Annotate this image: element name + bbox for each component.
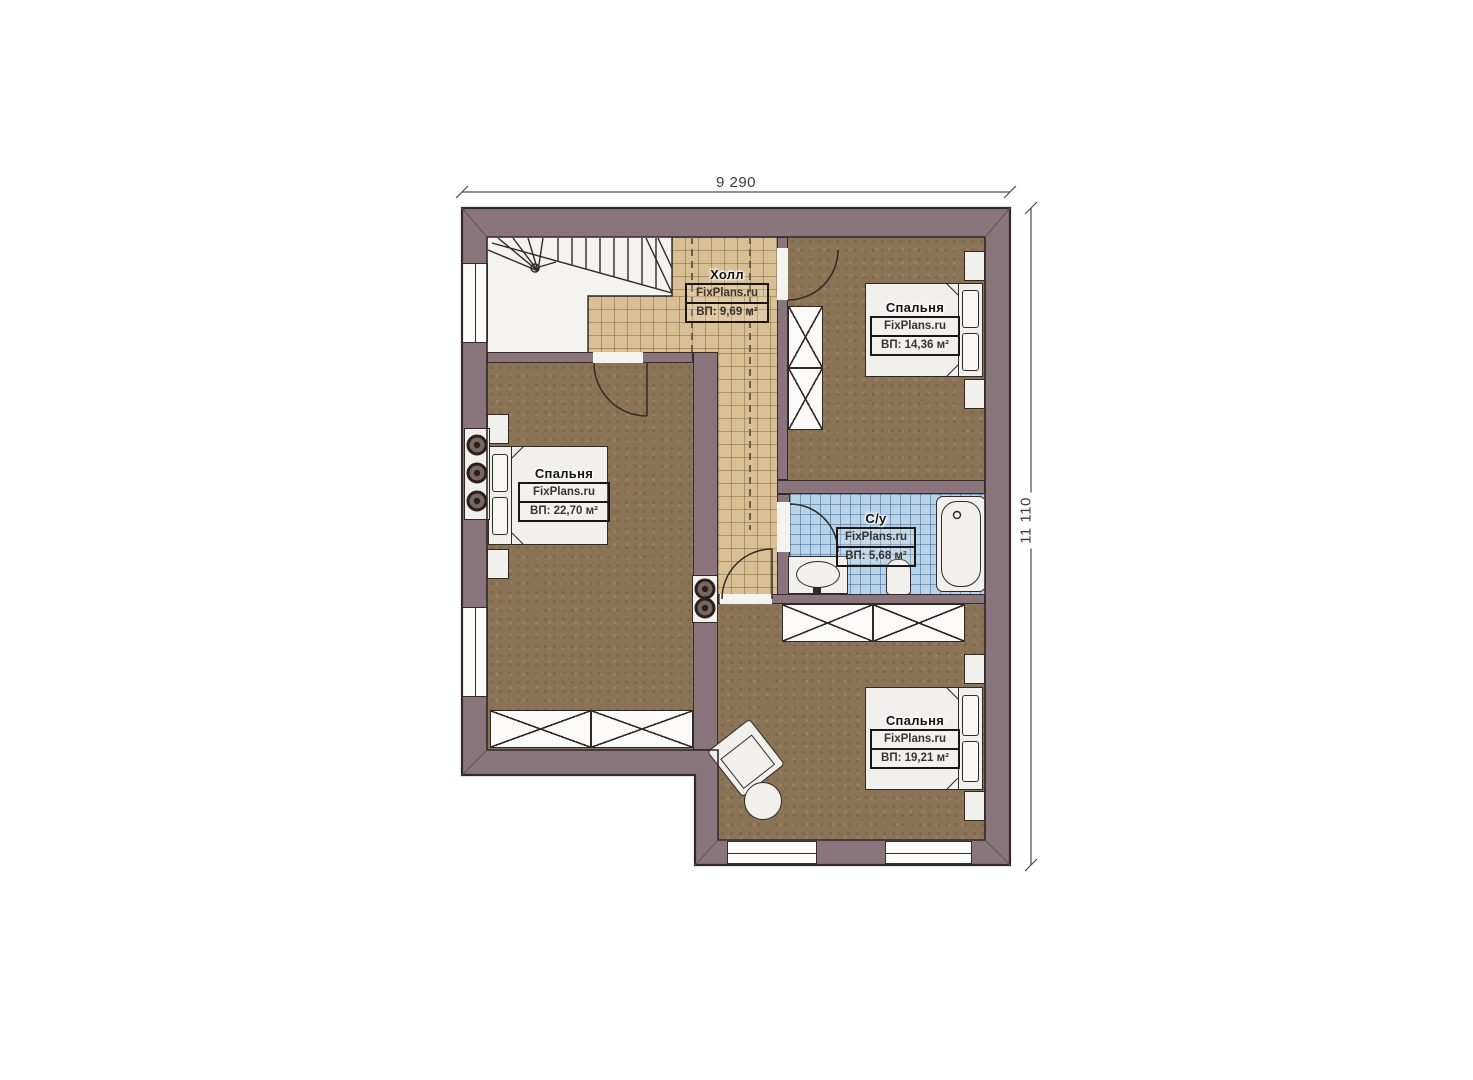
room-brand-watermark: FixPlans.ru	[836, 527, 916, 548]
room-label-bedroom-left: Спальня FixPlans.ru ВП: 22,70 м²	[518, 466, 610, 522]
room-area: ВП: 14,36 м²	[870, 335, 960, 356]
room-label-bedroom-top-right: Спальня FixPlans.ru ВП: 14,36 м²	[870, 300, 960, 356]
wall-step-left	[695, 775, 718, 840]
nightstand	[964, 791, 985, 821]
room-name: Холл	[685, 267, 769, 282]
chimney-flue-panel-left	[464, 428, 490, 520]
dimension-right-label: 11 110	[1018, 493, 1035, 549]
room-area: ВП: 9,69 м²	[685, 302, 769, 323]
window-staircase	[461, 263, 488, 343]
nightstand	[964, 379, 985, 409]
chimney-flue-panel-corridor	[692, 575, 718, 623]
room-brand-watermark: FixPlans.ru	[518, 482, 610, 503]
bathtub	[936, 496, 986, 592]
staircase-floor-lower	[487, 296, 588, 353]
room-brand-watermark: FixPlans.ru	[870, 316, 960, 337]
room-area: ВП: 22,70 м²	[518, 501, 610, 522]
nightstand	[487, 414, 509, 444]
room-name: Спальня	[870, 300, 960, 315]
pillow	[962, 695, 979, 736]
room-name: Спальня	[870, 713, 960, 728]
bathtub-inner	[941, 501, 981, 587]
door-opening-bedroom-bottom	[720, 594, 772, 604]
wardrobe-bedroom-left-cell	[490, 710, 591, 748]
room-name: Спальня	[518, 466, 610, 481]
pillow	[962, 741, 979, 782]
wall-bottom-left	[462, 750, 718, 775]
pillow	[962, 290, 979, 328]
wall-top	[462, 208, 1010, 237]
pillow	[492, 497, 508, 535]
nightstand	[964, 251, 985, 281]
wall-corridor-left	[693, 352, 718, 750]
door-opening-bedroom-left	[593, 352, 643, 363]
wardrobe-bedroom2-cell	[788, 368, 823, 430]
wardrobe-bedroom2-cell	[788, 306, 823, 368]
door-opening-bedroom-top-right	[777, 248, 788, 300]
room-brand-watermark: FixPlans.ru	[870, 729, 960, 750]
nightstand	[487, 549, 509, 579]
wall-bedroom2-bath	[777, 480, 985, 494]
window-bedroom-bottom-1	[727, 841, 817, 864]
floor-plan-canvas: Холл FixPlans.ru ВП: 9,69 м² Спальня Fix…	[0, 0, 1473, 1080]
room-area: ВП: 5,68 м²	[836, 546, 916, 567]
room-brand-watermark: FixPlans.ru	[685, 283, 769, 304]
nightstand	[964, 654, 985, 684]
wall-stair-bedroom	[487, 352, 693, 363]
room-name: С/у	[836, 511, 916, 526]
bedroom-left-floor	[487, 363, 693, 750]
wardrobe-bedroom3-cell	[782, 604, 873, 642]
pillow	[492, 454, 508, 492]
staircase-floor	[487, 237, 672, 296]
window-bedroom-left	[461, 607, 488, 697]
pillow	[962, 333, 979, 371]
window-bedroom-bottom-2	[885, 841, 972, 864]
sink-tap	[813, 587, 821, 594]
room-label-bathroom: С/у FixPlans.ru ВП: 5,68 м²	[836, 511, 916, 567]
hall-corridor-floor	[718, 353, 777, 594]
door-opening-bathroom	[777, 502, 790, 552]
wardrobe-bedroom3-cell	[873, 604, 965, 642]
room-area: ВП: 19,21 м²	[870, 748, 960, 769]
wardrobe-bedroom-left-cell	[591, 710, 693, 748]
side-table	[744, 782, 782, 820]
wall-right	[985, 237, 1010, 865]
dimension-top-label: 9 290	[700, 174, 772, 191]
sink-basin	[796, 561, 840, 588]
room-label-bedroom-bottom: Спальня FixPlans.ru ВП: 19,21 м²	[870, 713, 960, 769]
room-label-hall: Холл FixPlans.ru ВП: 9,69 м²	[685, 267, 769, 323]
